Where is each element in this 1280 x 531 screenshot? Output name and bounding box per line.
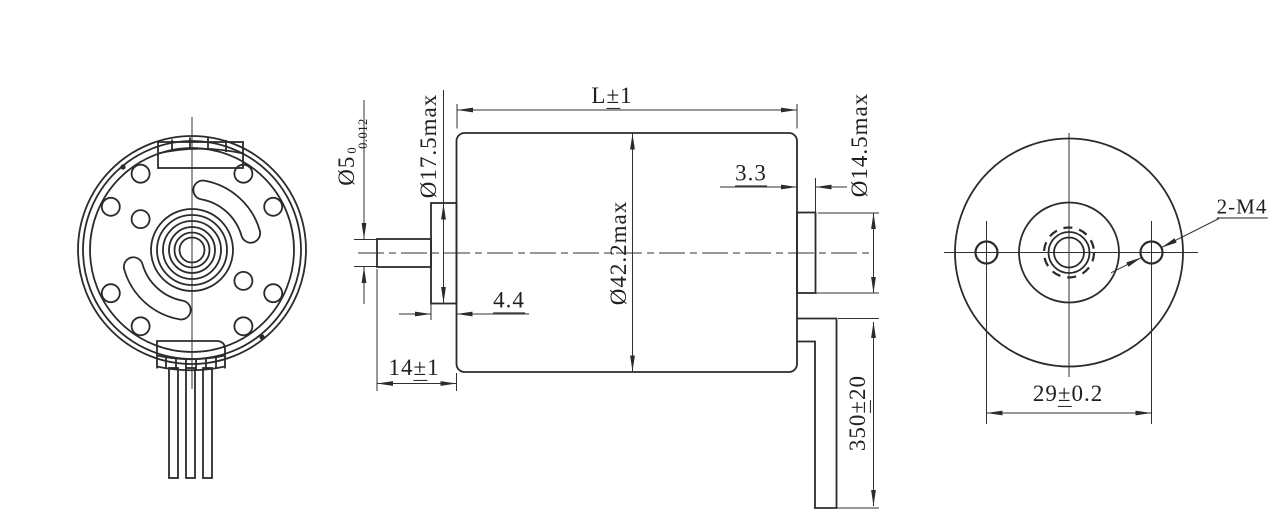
dim-body-length: L±1 [591, 84, 632, 108]
dim-front-boss-length: 4.4 [493, 288, 525, 313]
dim-text: 14 [388, 355, 413, 380]
arrowhead [871, 213, 876, 229]
arrowhead [415, 312, 431, 317]
tolerance-lower: -0.012 [358, 118, 369, 153]
tolerance-stack: 0-0.012 [347, 118, 369, 153]
arrowhead [871, 322, 876, 338]
arrowhead [457, 108, 473, 113]
orientation-mark [120, 164, 125, 169]
arrowhead [441, 287, 446, 303]
dim-text: 1 [427, 355, 440, 380]
dim-text: Ø5 [334, 156, 359, 186]
vent-hole [132, 317, 150, 335]
inner-hole [234, 272, 252, 290]
dim-text: 20 [845, 375, 870, 400]
dim-rear-boss-diameter: Ø14.5max [848, 93, 872, 197]
arrowhead [630, 134, 635, 150]
arrowhead [1126, 257, 1141, 266]
arrowhead [1136, 411, 1152, 416]
dim-text: Ø17.5max [416, 94, 441, 198]
vent-hole [102, 198, 120, 216]
arrowhead [987, 411, 1003, 416]
arrowhead [871, 490, 876, 506]
lead-wire [203, 368, 212, 478]
dim-shaft-diameter: Ø50-0.012 [335, 118, 369, 185]
lead-wire [169, 368, 178, 478]
dim-text: Ø42.2max [606, 201, 631, 305]
arrowhead [441, 381, 457, 386]
dim-text: ± [845, 400, 871, 414]
arrowhead [441, 204, 446, 220]
vent-hole [234, 317, 252, 335]
dim-mounting-hole-spacing: 29±0.2 [1033, 382, 1103, 406]
dim-rear-boss-length: 3.3 [735, 161, 767, 186]
orientation-mark [259, 334, 264, 339]
arrowhead [457, 312, 473, 317]
inner-hole [132, 210, 150, 228]
vent-hole [264, 198, 282, 216]
arrowhead [781, 108, 797, 113]
arrowhead [377, 381, 393, 386]
dim-shaft-length: 14±1 [388, 356, 439, 380]
vent-hole [132, 165, 150, 183]
arrowhead [871, 277, 876, 293]
kidney-slot-top-right [193, 181, 260, 243]
dim-text: 350 [845, 414, 870, 452]
arrowhead [781, 185, 797, 190]
dim-lead-wire-length: 350±20 [846, 375, 870, 451]
dim-text: 3.3 [735, 160, 767, 185]
dim-text: Ø14.5max [847, 93, 872, 197]
vent-hole [264, 284, 282, 302]
dim-text: 2-M4 [1217, 194, 1268, 218]
arrowhead [362, 267, 367, 283]
dim-text: ± [606, 83, 620, 109]
vent-hole [102, 284, 120, 302]
arrowhead [362, 223, 367, 239]
dim-text: ± [413, 355, 427, 381]
arrowhead [630, 356, 635, 372]
kidney-slot-bottom-left [124, 257, 191, 319]
dim-text: 1 [620, 83, 633, 108]
arrowhead [1161, 238, 1176, 247]
dim-text: 4.4 [493, 287, 525, 312]
dim-front-boss-diameter: Ø17.5max [417, 94, 441, 198]
dim-text: 29 [1033, 381, 1058, 406]
front-view [78, 117, 306, 478]
dim-text: ± [1058, 381, 1072, 407]
lead-wire [186, 368, 195, 478]
label-mounting-holes: 2-M4 [1217, 195, 1268, 218]
drawing-linework [0, 0, 1280, 531]
lead-wire-bundle-outline [797, 319, 837, 509]
dim-text: L [591, 83, 606, 108]
dim-body-diameter: Ø42.2max [607, 201, 631, 305]
dim-text: 0.2 [1071, 381, 1103, 406]
arrowhead [816, 185, 832, 190]
engineering-drawing-canvas: L±1 Ø50-0.012 Ø17.5max Ø42.2max 3.3 Ø14.… [0, 0, 1280, 531]
